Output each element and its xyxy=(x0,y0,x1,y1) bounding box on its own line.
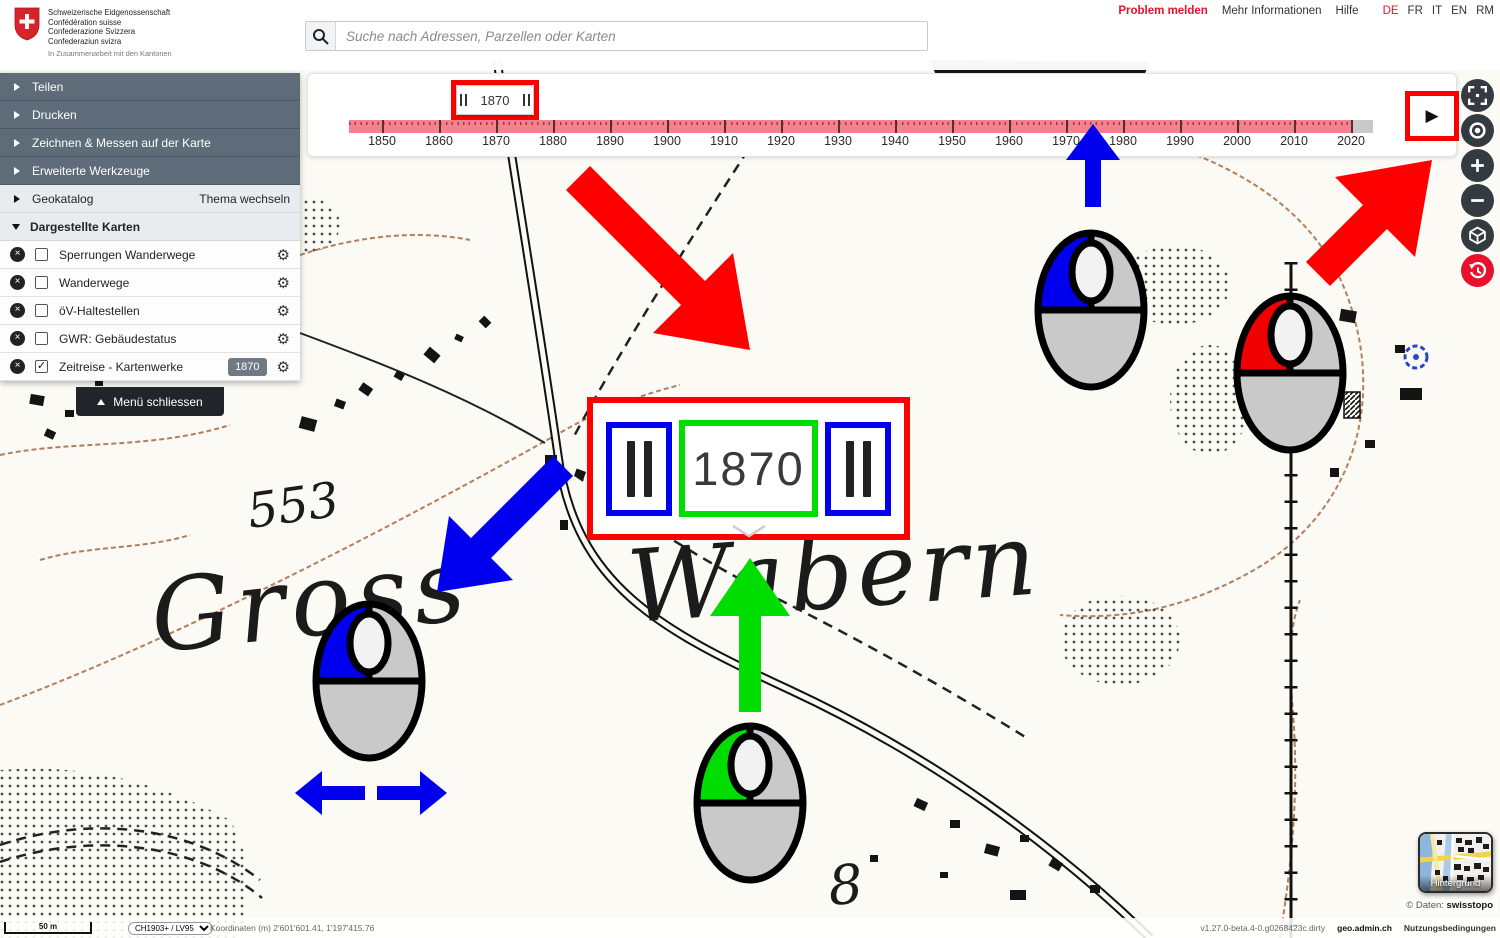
scale-value: 50 m xyxy=(39,922,57,931)
sidebar-item-label: Drucken xyxy=(32,108,77,122)
callout-year-value: 1870 xyxy=(679,420,818,517)
tutorial-thumb-callout: 1870 xyxy=(587,397,910,540)
layer-label: öV-Haltestellen xyxy=(59,304,140,318)
layer-year-badge[interactable]: 1870 xyxy=(228,358,266,376)
close-menu-button[interactable]: Menü schliessen xyxy=(76,387,224,416)
more-info-link[interactable]: Mehr Informationen xyxy=(1222,5,1322,17)
copyright-attribution: © Daten: swisstopo xyxy=(1402,899,1497,912)
logo-line: Confederaziun svizra xyxy=(48,37,172,47)
layer-label: Sperrungen Wanderwege xyxy=(59,248,195,262)
year-tick-label: 1890 xyxy=(596,134,624,148)
projection-select[interactable]: CH1903+ / LV95 xyxy=(128,922,213,935)
search-input[interactable] xyxy=(336,22,927,50)
settings-gear-icon[interactable]: ⚙ xyxy=(277,274,290,292)
confederation-logo: Schweizerische Eidgenossenschaft Confédé… xyxy=(14,7,172,58)
copyright-label: © Daten: xyxy=(1406,900,1444,911)
layer-checkbox-checked[interactable]: ✓ xyxy=(35,360,48,373)
fullscreen-icon xyxy=(1468,86,1487,105)
time-slider-panel: 1870 1850 1860 1870 1880 1890 1900 1910 xyxy=(307,73,1457,157)
remove-layer-icon[interactable]: × xyxy=(10,359,25,374)
fullscreen-button[interactable] xyxy=(1461,79,1494,112)
lang-en[interactable]: EN xyxy=(1451,5,1467,17)
swiss-coat-of-arms-icon xyxy=(14,7,40,41)
year-tick-label: 1920 xyxy=(767,134,795,148)
remove-layer-icon[interactable]: × xyxy=(10,247,25,262)
year-tick-label: 1930 xyxy=(824,134,852,148)
lang-fr[interactable]: FR xyxy=(1408,5,1423,17)
year-tick-label: 1980 xyxy=(1109,134,1137,148)
lang-it[interactable]: IT xyxy=(1432,5,1442,17)
sidebar-item-label: Teilen xyxy=(32,80,63,94)
settings-gear-icon[interactable]: ⚙ xyxy=(277,302,290,320)
settings-gear-icon[interactable]: ⚙ xyxy=(277,330,290,348)
search-icon xyxy=(312,28,329,45)
layer-checkbox[interactable] xyxy=(35,276,48,289)
expand-arrow-icon xyxy=(14,195,20,203)
year-tick-label: 2020 xyxy=(1337,134,1365,148)
sidebar-item-label: Geokatalog xyxy=(32,192,93,206)
year-tick-label: 1880 xyxy=(539,134,567,148)
settings-gear-icon[interactable]: ⚙ xyxy=(277,358,290,376)
search-bar xyxy=(305,21,928,51)
sidebar-item-zeichnen[interactable]: Zeichnen & Messen auf der Karte xyxy=(0,129,300,157)
chevron-down-icon xyxy=(731,524,767,538)
search-button[interactable] xyxy=(306,22,336,50)
help-link[interactable]: Hilfe xyxy=(1336,5,1359,17)
logo-line: Schweizerische Eidgenossenschaft xyxy=(48,8,172,18)
year-tick-label: 1940 xyxy=(881,134,909,148)
callout-left-grip-icon xyxy=(606,422,672,516)
terms-link[interactable]: Nutzungsbedingungen xyxy=(1404,923,1496,933)
mouse-coordinates: Koordinaten (m) 2'601'601.41, 1'197'415.… xyxy=(210,923,374,933)
play-button[interactable]: ▶ xyxy=(1410,96,1454,136)
zoom-in-icon xyxy=(1468,156,1487,175)
timeline-year-labels: 1850 1860 1870 1880 1890 1900 1910 1920 … xyxy=(349,134,1373,150)
zoom-out-icon xyxy=(1468,191,1487,210)
year-tick-label: 1970 xyxy=(1052,134,1080,148)
background-selector-label: Hintergrund xyxy=(1420,875,1491,891)
zoom-out-button[interactable] xyxy=(1461,184,1494,217)
sidebar-item-label: Zeichnen & Messen auf der Karte xyxy=(32,136,211,150)
3d-view-button[interactable] xyxy=(1461,219,1494,252)
year-tick-label: 2010 xyxy=(1280,134,1308,148)
zoom-in-button[interactable] xyxy=(1461,149,1494,182)
year-tick-label: 1870 xyxy=(482,134,510,148)
layer-label: Wanderwege xyxy=(59,276,129,290)
layer-row-haltestellen[interactable]: × öV-Haltestellen ⚙ xyxy=(0,297,300,325)
geoadmin-app: 553 Gross Wabern 8 Schweizerische Eidgen… xyxy=(0,0,1500,938)
collapse-arrow-icon xyxy=(12,224,20,230)
thumb-right-grip-icon[interactable] xyxy=(517,94,536,106)
layer-row-wanderwege[interactable]: × Wanderwege ⚙ xyxy=(0,269,300,297)
geoadmin-link[interactable]: geo.admin.ch xyxy=(1337,923,1392,933)
remove-layer-icon[interactable]: × xyxy=(10,331,25,346)
map-label-number: 8 xyxy=(826,852,866,918)
expand-arrow-icon xyxy=(14,83,20,91)
close-menu-label: Menü schliessen xyxy=(113,395,202,409)
year-tick-label: 1900 xyxy=(653,134,681,148)
change-topic-button[interactable]: Thema wechseln xyxy=(199,192,290,206)
header-links: Problem melden Mehr Informationen Hilfe … xyxy=(1118,5,1494,17)
lang-de[interactable]: DE xyxy=(1383,5,1399,17)
app-version: v1.27.0-beta.4-0.g0268423c.dirty xyxy=(1200,923,1325,933)
logo-line: Confédération suisse xyxy=(48,18,172,28)
year-tick-label: 1910 xyxy=(710,134,738,148)
sidebar-item-label: Erweiterte Werkzeuge xyxy=(32,164,150,178)
3d-cube-icon xyxy=(1468,226,1487,245)
year-tick-label: 1850 xyxy=(368,134,396,148)
layer-row-gwr[interactable]: × GWR: Gebäudestatus ⚙ xyxy=(0,325,300,353)
geolocate-icon xyxy=(1468,121,1487,140)
layer-checkbox[interactable] xyxy=(35,248,48,261)
sidebar-item-teilen[interactable]: Teilen xyxy=(0,73,300,101)
caret-up-icon xyxy=(97,399,105,405)
tutorial-highlight-play: ▶ xyxy=(1405,91,1459,141)
time-history-icon xyxy=(1468,261,1488,281)
section-label: Dargestellte Karten xyxy=(30,220,140,234)
track-future-segment xyxy=(1353,120,1373,133)
year-tick-label: 2000 xyxy=(1223,134,1251,148)
logo-line: Confederazione Svizzera xyxy=(48,27,172,37)
layer-row-zeitreise[interactable]: × ✓ Zeitreise - Kartenwerke 1870 ⚙ xyxy=(0,353,300,381)
year-tick-label: 1990 xyxy=(1166,134,1194,148)
layer-checkbox[interactable] xyxy=(35,332,48,345)
sidebar-section-displayed-maps[interactable]: Dargestellte Karten xyxy=(0,213,300,241)
footer-links: v1.27.0-beta.4-0.g0268423c.dirty geo.adm… xyxy=(1200,923,1496,933)
copyright-owner-link[interactable]: swisstopo xyxy=(1447,900,1493,911)
year-tick-label: 1860 xyxy=(425,134,453,148)
map-tools xyxy=(1461,79,1494,287)
year-tick-label: 1950 xyxy=(938,134,966,148)
year-tick-label: 1960 xyxy=(995,134,1023,148)
lang-rm[interactable]: RM xyxy=(1476,5,1494,17)
tutorial-highlight-thumb: 1870 xyxy=(451,80,539,120)
time-travel-button[interactable] xyxy=(1461,254,1494,287)
play-icon: ▶ xyxy=(1425,106,1438,126)
layer-checkbox[interactable] xyxy=(35,304,48,317)
expand-arrow-icon xyxy=(14,167,20,175)
time-slider-thumb[interactable]: 1870 xyxy=(456,85,534,115)
header: Schweizerische Eidgenossenschaft Confédé… xyxy=(0,0,1500,70)
report-problem-link[interactable]: Problem melden xyxy=(1118,5,1207,17)
layer-row-sperrungen[interactable]: × Sperrungen Wanderwege ⚙ xyxy=(0,241,300,269)
layer-label: GWR: Gebäudestatus xyxy=(59,332,176,346)
remove-layer-icon[interactable]: × xyxy=(10,303,25,318)
scale-bar: 50 m xyxy=(4,922,92,934)
settings-gear-icon[interactable]: ⚙ xyxy=(277,246,290,264)
geolocate-button[interactable] xyxy=(1461,114,1494,147)
thumb-left-grip-icon[interactable] xyxy=(454,94,473,106)
footer-bar: 50 m CH1903+ / LV95 Koordinaten (m) 2'60… xyxy=(0,918,1500,938)
logo-subline: In Zusammenarbeit mit den Kantonen xyxy=(48,49,172,58)
sidebar-item-drucken[interactable]: Drucken xyxy=(0,101,300,129)
time-slider-track[interactable] xyxy=(349,120,1373,133)
callout-right-grip-icon xyxy=(825,422,891,516)
expand-arrow-icon xyxy=(14,139,20,147)
expand-arrow-icon xyxy=(14,111,20,119)
sidebar: Teilen Drucken Zeichnen & Messen auf der… xyxy=(0,73,300,381)
background-selector[interactable]: Hintergrund xyxy=(1418,832,1493,893)
remove-layer-icon[interactable]: × xyxy=(10,275,25,290)
language-switcher: DE FR IT EN RM xyxy=(1383,5,1494,17)
layer-label: Zeitreise - Kartenwerke xyxy=(59,360,183,374)
thumb-year-value: 1870 xyxy=(473,93,518,108)
sidebar-item-werkzeuge[interactable]: Erweiterte Werkzeuge xyxy=(0,157,300,185)
sidebar-item-geokatalog[interactable]: Geokatalog Thema wechseln xyxy=(0,185,300,213)
